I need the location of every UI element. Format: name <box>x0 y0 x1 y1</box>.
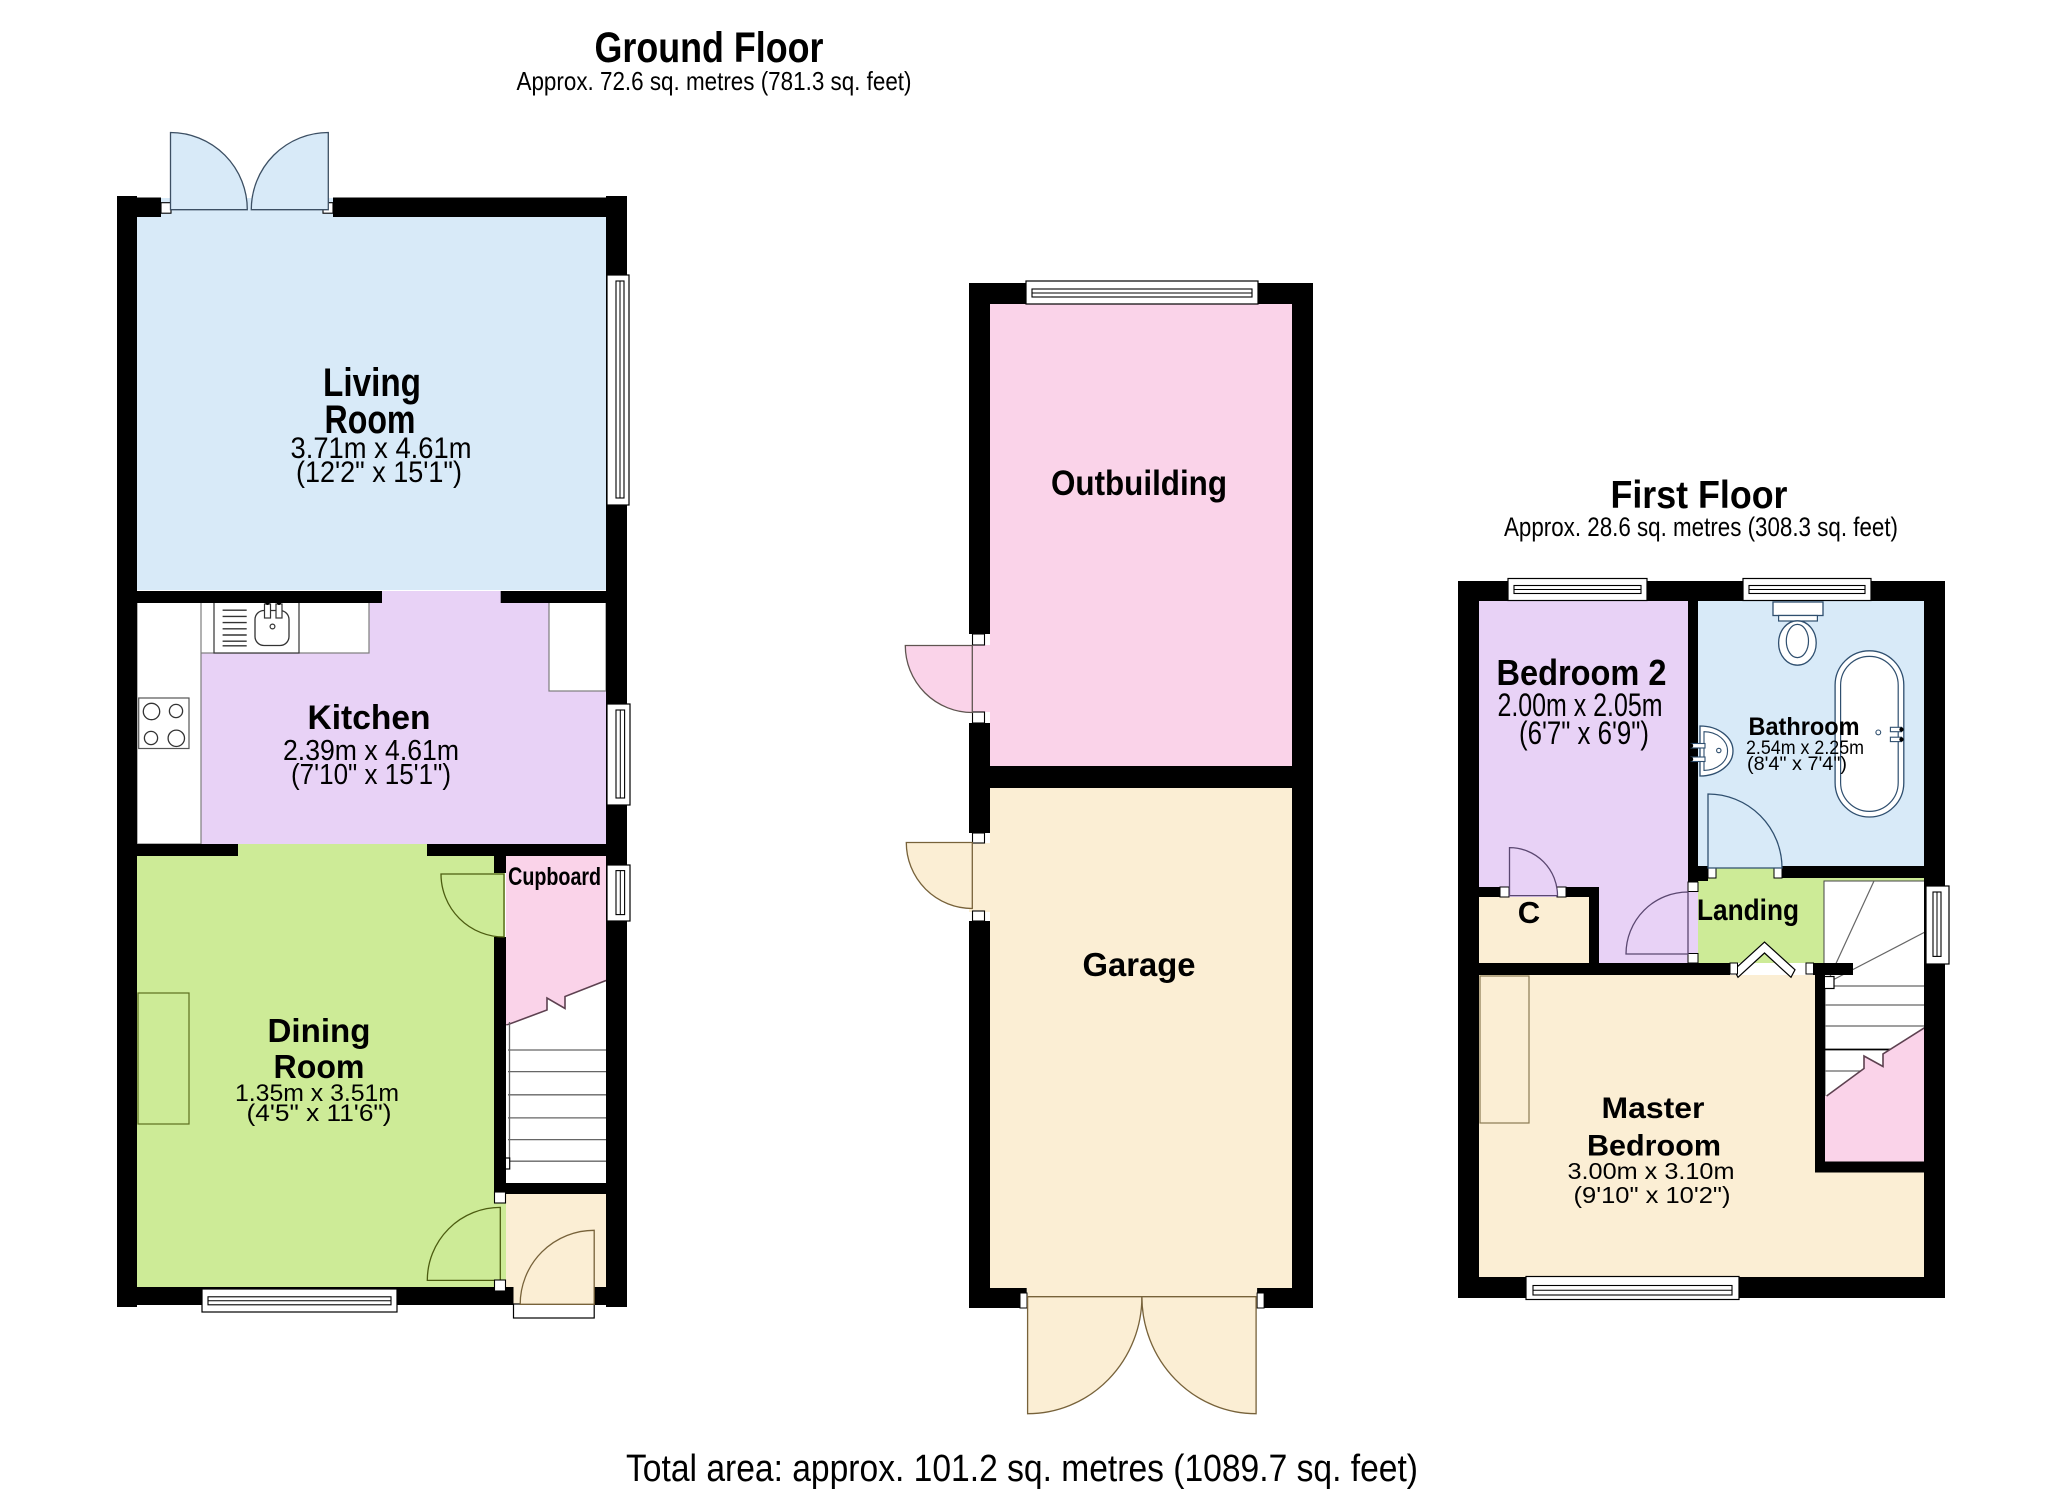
svg-text:Ground Floor: Ground Floor <box>595 24 824 72</box>
svg-text:(6'7" x 6'9"): (6'7" x 6'9") <box>1519 715 1649 751</box>
svg-text:Approx. 28.6 sq. metres (308.3: Approx. 28.6 sq. metres (308.3 sq. feet) <box>1504 512 1898 542</box>
svg-text:Master: Master <box>1602 1092 1705 1125</box>
svg-text:Dining: Dining <box>268 1012 371 1049</box>
svg-text:Landing: Landing <box>1697 894 1799 927</box>
svg-text:First Floor: First Floor <box>1611 474 1788 517</box>
svg-text:Kitchen: Kitchen <box>308 699 431 737</box>
svg-text:(7'10" x 15'1"): (7'10" x 15'1") <box>291 759 451 791</box>
svg-text:3.00m x 3.10m: 3.00m x 3.10m <box>1568 1158 1735 1184</box>
svg-text:Cupboard: Cupboard <box>508 863 601 891</box>
svg-text:Outbuilding: Outbuilding <box>1051 464 1227 503</box>
svg-text:(9'10" x 10'2"): (9'10" x 10'2") <box>1574 1182 1731 1208</box>
svg-text:(4'5" x 11'6"): (4'5" x 11'6") <box>247 1100 392 1127</box>
svg-text:Bathroom: Bathroom <box>1749 713 1860 741</box>
svg-text:Total area: approx. 101.2 sq.: Total area: approx. 101.2 sq. metres (10… <box>626 1448 1418 1490</box>
svg-text:C: C <box>1518 895 1540 930</box>
svg-text:Approx. 72.6 sq. metres (781.3: Approx. 72.6 sq. metres (781.3 sq. feet) <box>517 66 912 96</box>
svg-text:Garage: Garage <box>1083 946 1196 983</box>
svg-text:(12'2" x 15'1"): (12'2" x 15'1") <box>296 456 462 489</box>
svg-text:(8'4" x 7'4"): (8'4" x 7'4") <box>1747 754 1847 775</box>
